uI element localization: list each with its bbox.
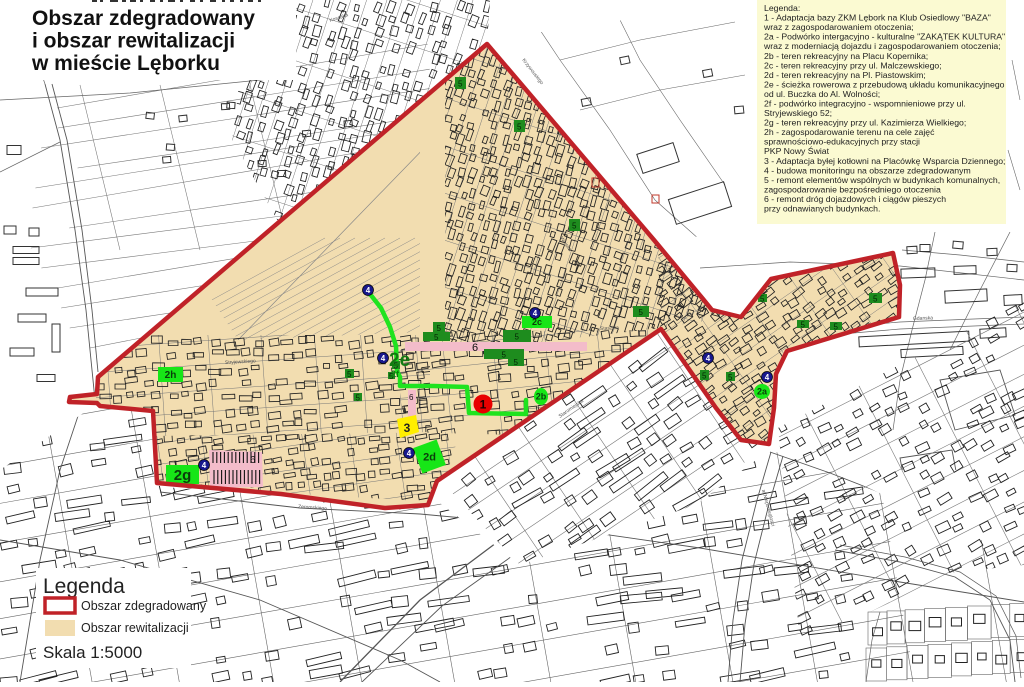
svg-text:5 - remont elementów wspólnych: 5 - remont elementów wspólnych w budynka…	[764, 175, 1000, 185]
svg-text:Skala 1:5000: Skala 1:5000	[43, 643, 142, 662]
svg-text:5: 5	[572, 222, 577, 231]
svg-text:Obszar rewitalizacji: Obszar rewitalizacji	[81, 621, 189, 635]
svg-text:4: 4	[202, 461, 207, 470]
svg-text:wraz z moderniacją dojazdu i z: wraz z moderniacją dojazdu i zagospodaro…	[763, 41, 1001, 51]
svg-text:5: 5	[873, 295, 878, 304]
svg-text:6 - remont dróg dojazdowych i: 6 - remont dróg dojazdowych i ciągów pie…	[764, 194, 946, 204]
svg-text:2h: 2h	[165, 370, 177, 381]
svg-text:5: 5	[437, 324, 442, 333]
svg-text:2f - podwórko integracyjno - w: 2f - podwórko integracyjno - wspomnienio…	[764, 99, 966, 109]
svg-text:5: 5	[356, 394, 361, 403]
svg-text:2e: 2e	[389, 350, 410, 371]
svg-text:5: 5	[514, 358, 519, 367]
svg-text:2b: 2b	[536, 392, 547, 402]
svg-text:zagospodarowanie bezpośrednieg: zagospodarowanie bezpośredniego otoczeni…	[764, 185, 941, 195]
svg-text:5: 5	[702, 372, 707, 381]
svg-text:5: 5	[347, 370, 352, 379]
svg-text:1: 1	[480, 398, 487, 412]
svg-text:3: 3	[404, 421, 411, 435]
svg-text:Legenda:: Legenda:	[764, 3, 800, 13]
svg-text:5: 5	[434, 333, 439, 342]
svg-text:5: 5	[801, 321, 806, 330]
svg-text:2g: 2g	[174, 467, 192, 484]
svg-text:w mieście Lęborku: w mieście Lęborku	[31, 52, 220, 75]
svg-text:2d - teren rekreacyjny na Pl.: 2d - teren rekreacyjny na Pl. Piastowski…	[764, 70, 926, 80]
svg-text:Obszar zdegradowany: Obszar zdegradowany	[81, 599, 207, 613]
svg-text:5: 5	[502, 351, 507, 360]
svg-text:przy odnawianych budynkach.: przy odnawianych budynkach.	[764, 204, 880, 214]
svg-text:2d: 2d	[423, 451, 436, 463]
svg-text:4: 4	[381, 354, 386, 363]
svg-text:5: 5	[515, 333, 520, 342]
svg-text:i obszar rewitalizacji: i obszar rewitalizacji	[32, 30, 235, 53]
svg-text:6: 6	[250, 455, 256, 466]
svg-text:2g - teren rekreacyjny przy ul: 2g - teren rekreacyjny przy ul. Kazimier…	[764, 118, 966, 128]
svg-text:Staszica: Staszica	[600, 325, 619, 332]
svg-text:6: 6	[472, 342, 478, 354]
svg-text:2a - Podwórko intergacyjno - k: 2a - Podwórko intergacyjno - kulturalne …	[764, 32, 1005, 42]
svg-text:5: 5	[728, 373, 733, 382]
svg-text:2a: 2a	[757, 387, 768, 397]
svg-text:5: 5	[834, 323, 839, 332]
svg-text:4: 4	[407, 449, 412, 458]
svg-text:5: 5	[760, 295, 765, 304]
svg-text:1 - Adaptacja bazy ZKM Lębork: 1 - Adaptacja bazy ZKM Lębork na Klub Os…	[764, 13, 991, 23]
svg-text:4 - budowa monitoringu na obsz: 4 - budowa monitoringu na obszarze zdegr…	[764, 165, 971, 175]
svg-text:5: 5	[458, 80, 463, 89]
svg-text:2f: 2f	[391, 369, 400, 379]
svg-text:4: 4	[765, 373, 770, 382]
svg-text:Legenda: Legenda	[43, 575, 125, 598]
svg-text:sprawnościowo-edukacyjnych prz: sprawnościowo-edukacyjnych przy stacji	[764, 137, 920, 147]
svg-text:2c - teren rekreacyjny przy ul: 2c - teren rekreacyjny przy ul. Malczews…	[764, 60, 942, 70]
svg-text:4: 4	[706, 354, 711, 363]
svg-text:2b - teren rekreacyjny na Plac: 2b - teren rekreacyjny na Placu Kopernik…	[764, 51, 928, 61]
svg-text:5: 5	[517, 123, 522, 132]
svg-text:2e - ścieżka rowerowa z przebu: 2e - ścieżka rowerowa z przebudową układ…	[764, 79, 1005, 89]
svg-text:wraz z zagospodarowaniem otocz: wraz z zagospodarowaniem otoczenia;	[763, 22, 914, 32]
svg-text:Stryjewskiego 52;: Stryjewskiego 52;	[764, 108, 832, 118]
svg-text:4: 4	[533, 309, 538, 318]
svg-text:5: 5	[639, 308, 644, 317]
svg-text:4: 4	[366, 286, 371, 295]
svg-text:od ul. Buczka do Al. Wolności;: od ul. Buczka do Al. Wolności;	[764, 89, 880, 99]
svg-text:2h - zagospodarowanie terenu n: 2h - zagospodarowanie terenu na cele zaj…	[764, 127, 935, 137]
svg-text:PKP Nowy Świat: PKP Nowy Świat	[764, 145, 830, 156]
svg-text:3 - Adaptacja byłej kotłowni n: 3 - Adaptacja byłej kotłowni na Placówkę…	[764, 156, 1005, 166]
svg-text:Obszar zdegradowany: Obszar zdegradowany	[32, 7, 255, 30]
svg-text:6: 6	[409, 393, 414, 402]
svg-text:Gdanska: Gdanska	[913, 315, 933, 322]
